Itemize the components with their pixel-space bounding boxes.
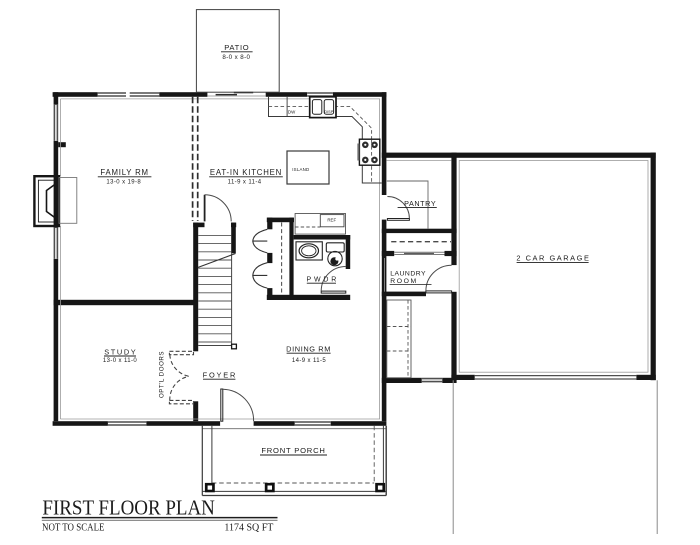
svg-text:FOYER: FOYER	[203, 371, 237, 380]
svg-text:LAUNDRY: LAUNDRY	[390, 271, 426, 278]
svg-text:OPT'L DOORS: OPT'L DOORS	[158, 351, 165, 398]
svg-text:2 CAR GARAGE: 2 CAR GARAGE	[516, 254, 590, 263]
svg-text:ISLAND: ISLAND	[292, 167, 309, 172]
svg-text:FRONT PORCH: FRONT PORCH	[261, 446, 325, 455]
svg-text:14-9 x 11-5: 14-9 x 11-5	[292, 358, 327, 364]
svg-text:NOT TO SCALE: NOT TO SCALE	[42, 522, 105, 533]
svg-text:13-0 x 11-0: 13-0 x 11-0	[103, 358, 138, 364]
svg-text:DISP: DISP	[324, 110, 333, 114]
svg-text:PWDR: PWDR	[307, 277, 340, 284]
svg-text:REF: REF	[327, 218, 336, 223]
svg-text:11-9 x 11-4: 11-9 x 11-4	[228, 180, 262, 186]
svg-text:8-0 x 8-0: 8-0 x 8-0	[222, 54, 250, 61]
svg-text:STUDY: STUDY	[104, 347, 137, 356]
svg-text:ROOM: ROOM	[390, 278, 418, 285]
svg-text:DW: DW	[288, 110, 296, 115]
svg-text:FIRST FLOOR PLAN: FIRST FLOOR PLAN	[42, 496, 215, 520]
svg-text:13-0 x 19-8: 13-0 x 19-8	[106, 180, 141, 186]
svg-text:EAT-IN KITCHEN: EAT-IN KITCHEN	[210, 168, 282, 177]
svg-text:PANTRY: PANTRY	[404, 199, 436, 208]
svg-text:FAMILY RM: FAMILY RM	[100, 168, 149, 177]
svg-text:PATIO: PATIO	[224, 43, 249, 52]
svg-text:1174 SQ FT: 1174 SQ FT	[224, 522, 274, 533]
svg-text:DINING RM: DINING RM	[286, 345, 331, 354]
